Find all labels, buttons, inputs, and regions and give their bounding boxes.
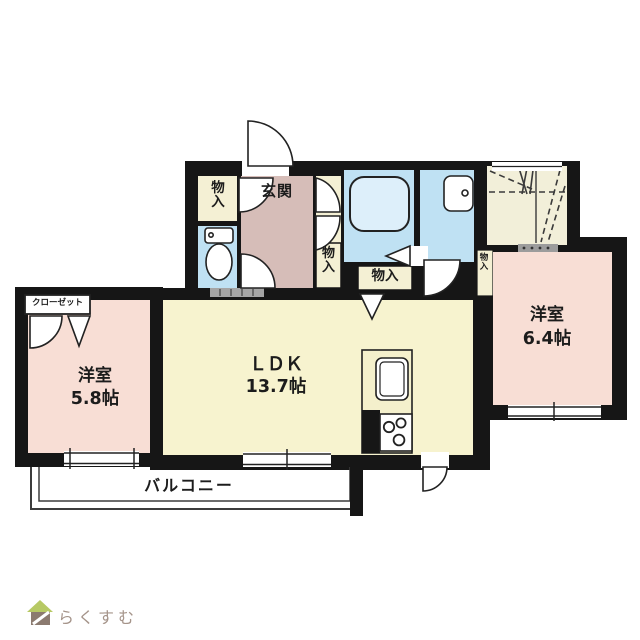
dashed-area-floor bbox=[487, 166, 567, 245]
closet-label: クローゼット bbox=[26, 299, 89, 309]
ldk-name: ＬＤＫ bbox=[218, 355, 334, 376]
storage-hall-label: 物入 bbox=[317, 247, 340, 274]
kitchen-counter bbox=[362, 350, 412, 453]
bedroom-left-name: 洋室 bbox=[45, 367, 145, 387]
window-top-right bbox=[492, 162, 562, 171]
bedroom-left-size: 5.8帖 bbox=[45, 389, 145, 409]
storage-small-label: 物入 bbox=[478, 254, 490, 272]
toilet-icon bbox=[205, 228, 233, 280]
door-arc-kitchen bbox=[423, 467, 447, 491]
rakusumu-logo-text: らくすむ bbox=[58, 604, 138, 628]
entrance-label: 玄関 bbox=[241, 183, 313, 200]
wall-right-room-top bbox=[567, 237, 627, 251]
entrance-step bbox=[210, 288, 264, 297]
storage-bath-label: 物入 bbox=[358, 269, 412, 285]
ldk-size: 13.7帖 bbox=[218, 377, 334, 397]
window-ldk bbox=[243, 449, 331, 470]
door-arc-front-entrance bbox=[248, 121, 293, 166]
washbasin-icon bbox=[444, 176, 473, 211]
bedroom-right-name: 洋室 bbox=[497, 306, 597, 326]
bedroom-right-size: 6.4帖 bbox=[497, 329, 597, 349]
floorplan: 物入 玄関 物入 物入 物入 クローゼット 洋室 5.8帖 ＬＤＫ 13.7帖 … bbox=[0, 0, 640, 640]
balcony-divider-wall bbox=[350, 467, 363, 516]
kitchen-door-gap bbox=[421, 452, 449, 468]
rakusumu-logo-icon bbox=[27, 600, 53, 625]
storage-top-label: 物入 bbox=[206, 181, 230, 209]
bathtub-icon bbox=[350, 177, 409, 231]
balcony-label: バルコニー bbox=[118, 477, 260, 495]
window-bedroom-left bbox=[64, 448, 139, 469]
stove-icon bbox=[380, 414, 412, 451]
